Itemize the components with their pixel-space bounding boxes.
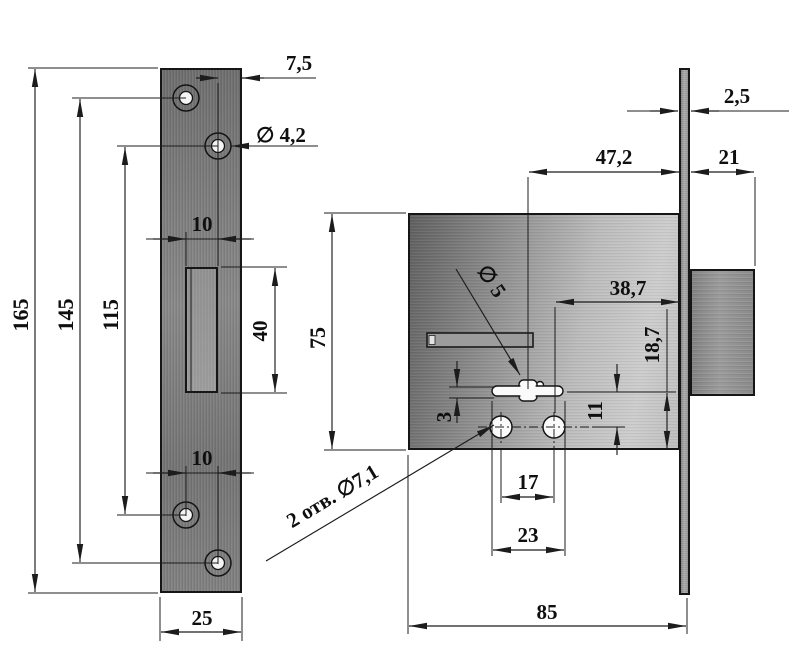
technical-drawing: 165 145 115 7,5 ∅ 4,2 [0, 0, 800, 665]
dim-hole-edge-distance-label: 7,5 [286, 51, 312, 75]
dim-body-height: 75 [305, 213, 406, 450]
dim-body-height-label: 75 [305, 327, 330, 349]
strike-plate-latch-cutout [185, 267, 218, 393]
dim-cutout-height-label: 40 [248, 321, 272, 342]
dim-bolt-length: 21 [691, 145, 755, 266]
dim-body-width: 85 [408, 455, 687, 634]
dim-plate-width-label: 25 [192, 606, 213, 630]
dim-inner-holes-spacing-label: 115 [98, 299, 123, 331]
dim-keyhole-to-faceplate-label: 47,2 [596, 145, 633, 169]
dim-plate-height: 165 [8, 68, 158, 593]
deadbolt [690, 269, 755, 396]
dim-body-width-label: 85 [537, 600, 558, 624]
dim-keyhole-length-label: 23 [518, 523, 539, 547]
dim-faceplate-thickness-label: 2,5 [724, 84, 750, 108]
dim-mounting-holes-label: 2 отв. ∅7,1 [282, 459, 382, 532]
dim-holes-spacing-label: 17 [518, 470, 539, 494]
dim-faceplate-thickness: 2,5 [627, 84, 789, 111]
lock-faceplate [679, 68, 690, 595]
dim-plate-width: 25 [160, 597, 242, 641]
dim-plate-height-label: 165 [8, 299, 33, 332]
dim-bolt-length-label: 21 [719, 145, 740, 169]
dim-screw-hole-diameter-label: ∅ 4,2 [256, 123, 306, 147]
lock-body [408, 213, 680, 450]
dim-outer-holes-spacing-label: 145 [53, 299, 78, 332]
dim-screw-hole-diameter: ∅ 4,2 [231, 123, 318, 147]
dim-holes-spacing: 17 [501, 446, 554, 503]
